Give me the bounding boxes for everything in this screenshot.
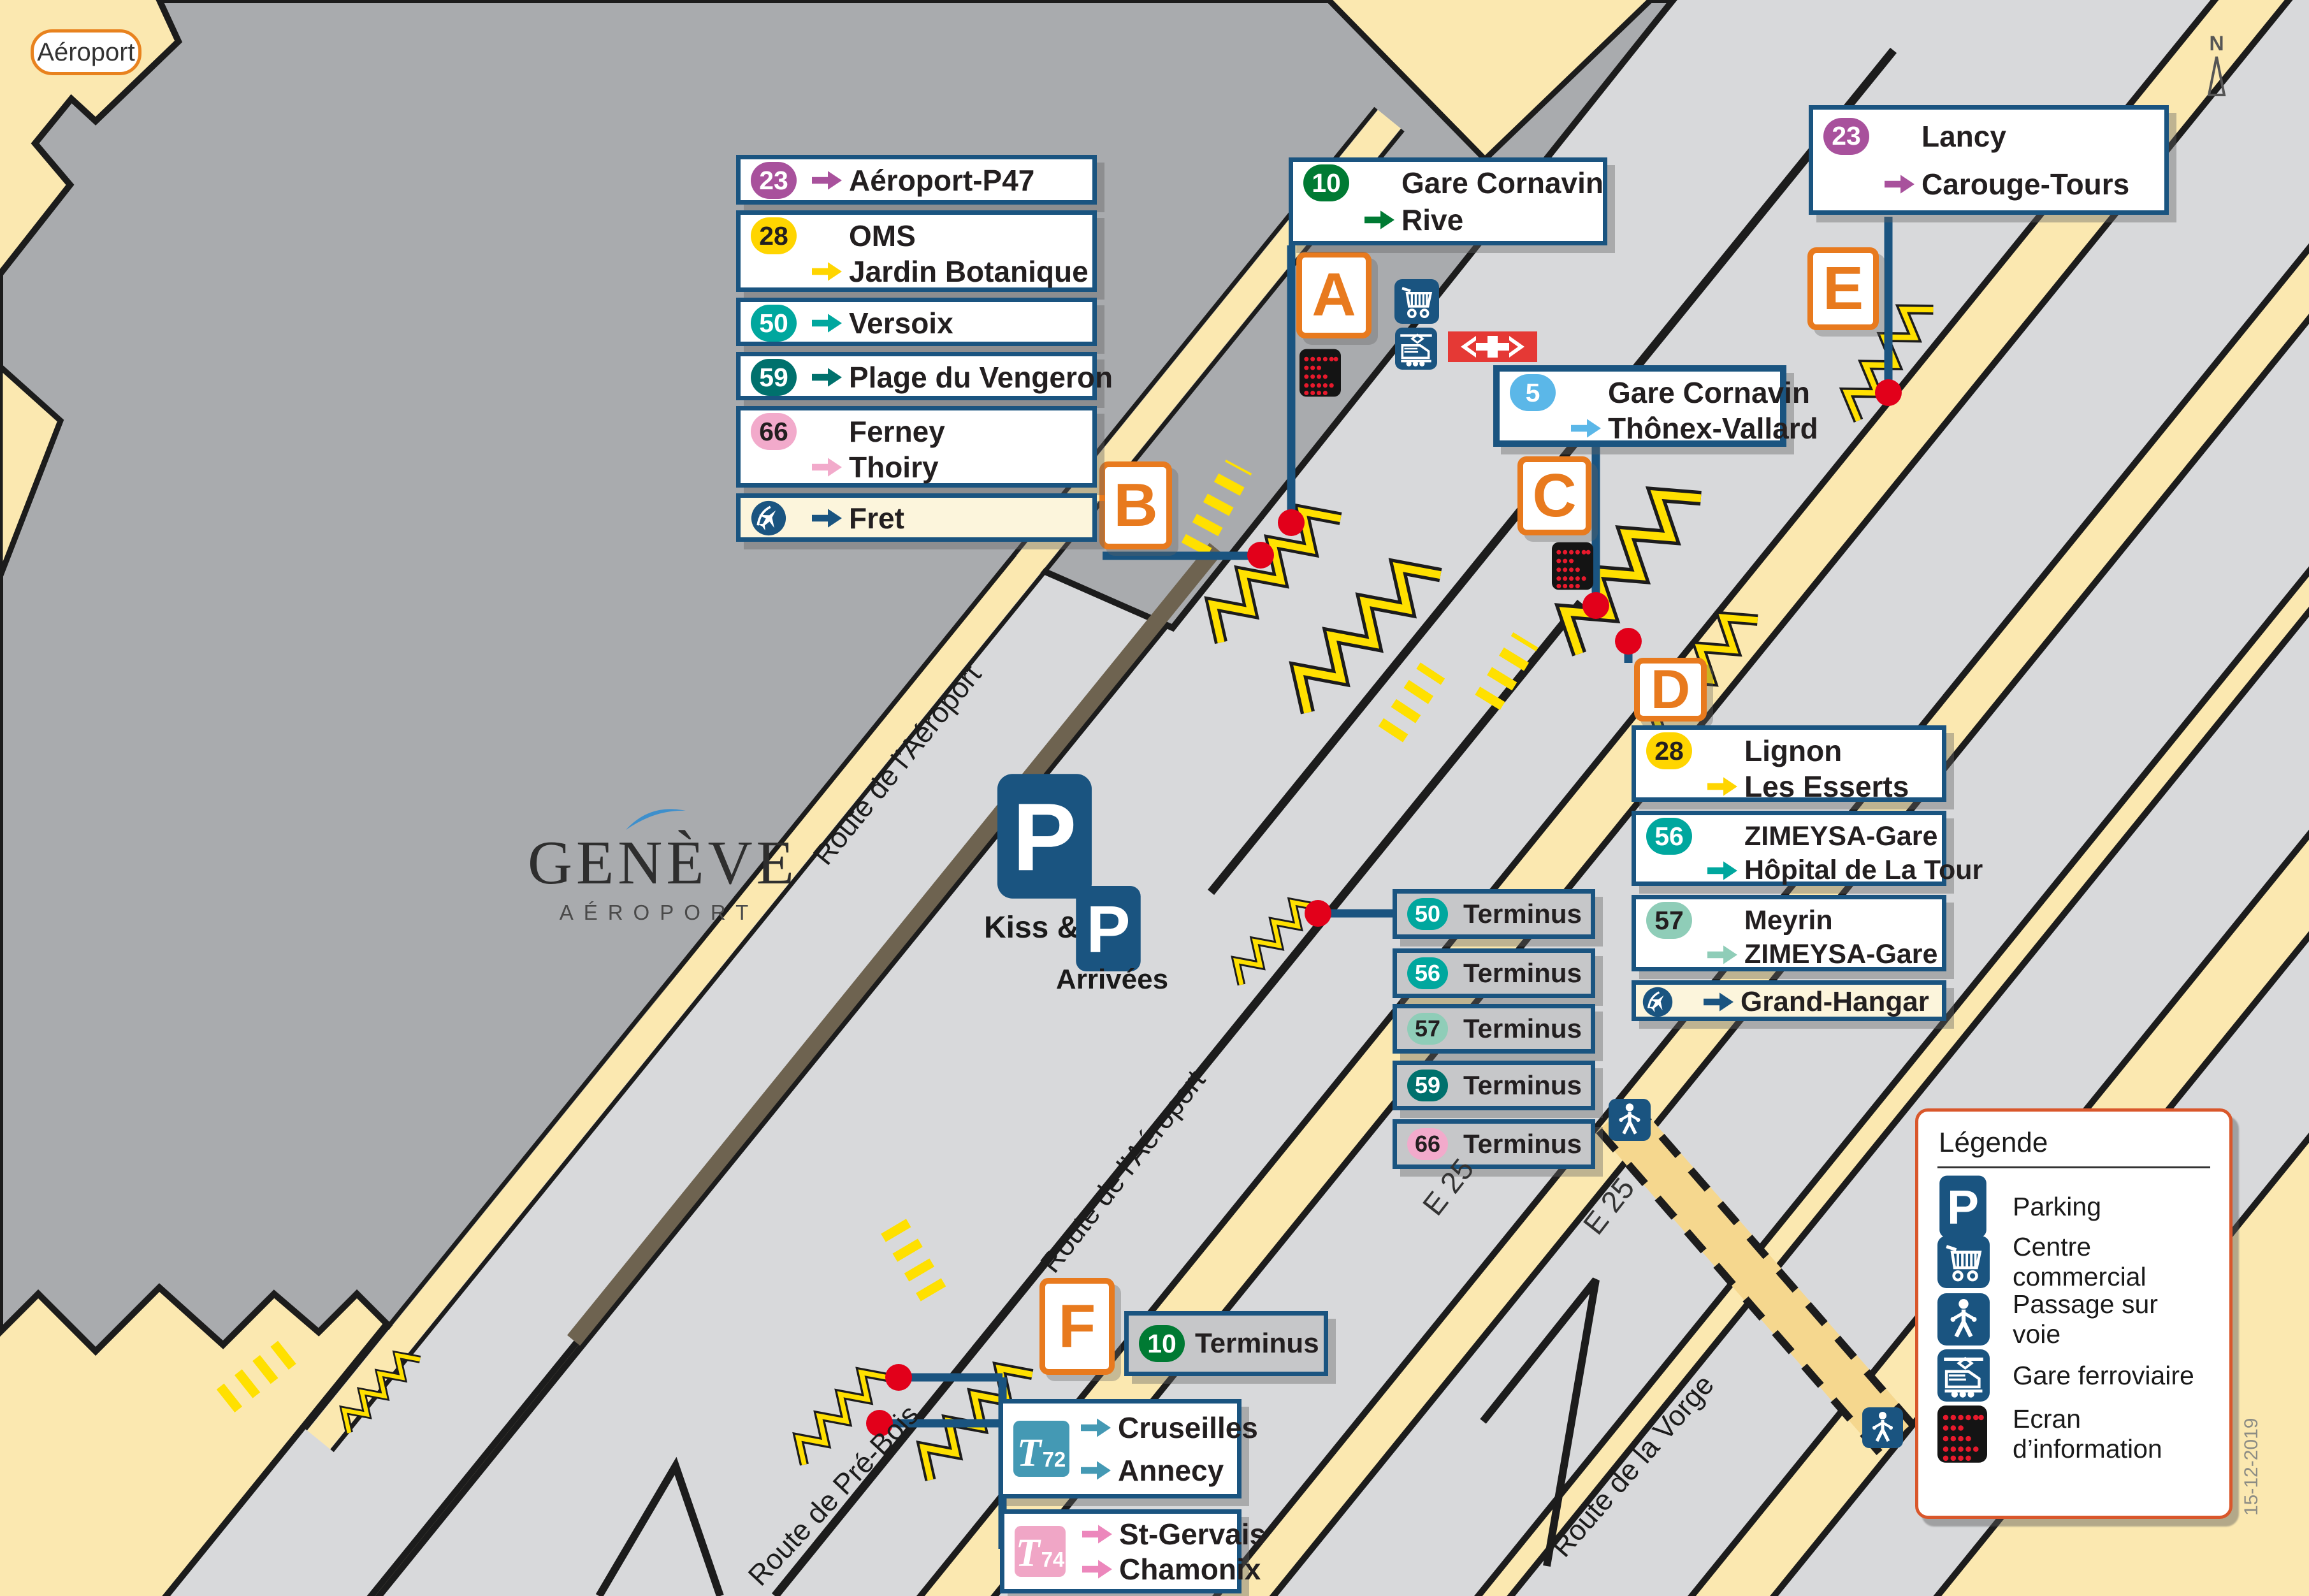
line-badge: 23 (751, 162, 797, 199)
airport-map: P (0, 0, 2309, 1596)
line-badge: 10 (1303, 164, 1349, 201)
line-badge: 50 (751, 305, 797, 342)
north-arrow: N (2196, 32, 2237, 99)
coach-logo-t: T (1017, 1436, 1041, 1472)
arrow-icon (1082, 1523, 1113, 1545)
logo-swoosh-icon (625, 802, 688, 831)
area-pill-label: Aéroport (37, 38, 134, 67)
route-sign-23: 23 Aéroport-P47 (736, 155, 1097, 205)
line-badge: 5 (1510, 374, 1556, 411)
stop-b-badge: B (1099, 461, 1172, 549)
plane-icon (1642, 987, 1673, 1017)
line-badge: 66 (751, 413, 797, 450)
terminus-sign-10: 10 Terminus (1124, 1311, 1328, 1376)
route-sign-57: 57 Meyrin ZIMEYSA-Gare (1632, 895, 1946, 971)
destination: Thônex-Vallard (1608, 411, 1818, 446)
route-sign-50: 50 Versoix (736, 298, 1097, 346)
route-sign-5-cornavin: 5 Gare Cornavin Thônex-Vallard (1493, 365, 1786, 447)
legend-item: Ecran d’information (1937, 1404, 2210, 1462)
line-badge: 56 (1646, 818, 1692, 855)
coach-sign-t74: T74 St-Gervais Chamonix (1000, 1509, 1241, 1593)
arrow-icon (1704, 991, 1734, 1013)
sbb-logo (1448, 331, 1537, 362)
destination: Carouge-Tours (1922, 167, 2157, 201)
terminus-sign-59: 59 Terminus (1393, 1061, 1595, 1110)
stop-e-letter: E (1823, 254, 1864, 324)
terminus-label: Terminus (1463, 1070, 1583, 1101)
line-badge: 50 (1407, 898, 1448, 930)
coach-logo-t: T (1016, 1536, 1040, 1572)
legend-item-label: Centre commercial (2013, 1232, 2210, 1292)
line-badge: 57 (1646, 902, 1692, 939)
arrow-icon (812, 507, 843, 529)
destination: Jardin Botanique (849, 254, 1089, 289)
destination: St-Gervais (1119, 1517, 1266, 1551)
arrow-icon (812, 456, 843, 478)
shopping-cart-icon (1394, 279, 1439, 324)
arrow-icon (1571, 417, 1602, 439)
legend-panel: Légende Parking Centre commercial Passag… (1915, 1108, 2233, 1519)
parking-arrivees-label: Arrivées (1026, 964, 1198, 996)
pedestrian-crossing-icon (1862, 1407, 1903, 1448)
arrow-icon (1082, 1558, 1113, 1580)
logo-subtitle: AÉROPORT (528, 901, 790, 925)
north-arrow-icon (2207, 55, 2226, 96)
line-badge: 57 (1407, 1013, 1448, 1045)
destination: Fret (849, 501, 1085, 535)
line-badge: 66 (1407, 1128, 1448, 1160)
route-sign-28: 28 OMS Jardin Botanique (736, 210, 1097, 292)
stop-b-letter: B (1113, 470, 1157, 540)
line-badge: 59 (1407, 1070, 1448, 1101)
legend-item-label: Gare ferroviaire (2013, 1361, 2210, 1391)
destination: Rive (1401, 203, 1603, 237)
arrow-icon (1707, 860, 1738, 881)
route-sign-23-lancy: 23 Lancy Carouge-Tours (1809, 105, 2169, 215)
stop-d-badge: D (1634, 658, 1707, 722)
terminus-label: Terminus (1463, 899, 1583, 929)
shopping-cart-icon (1937, 1236, 1990, 1288)
legend-divider (1937, 1166, 2210, 1168)
destination: OMS (849, 219, 1089, 253)
train-icon (1937, 1349, 1990, 1402)
legend-item: Passage sur voie (1937, 1289, 2210, 1347)
destination: Annecy (1118, 1453, 1258, 1488)
route-sign-28-lignon: 28 Lignon Les Esserts (1632, 725, 1946, 802)
line-badge: 28 (751, 217, 797, 254)
arrow-icon (1885, 173, 1915, 195)
destination: ZIMEYSA-Gare (1744, 939, 1937, 970)
route-sign-66: 66 Ferney Thoiry (736, 406, 1097, 488)
stop-c-badge: C (1517, 456, 1591, 535)
stop-d-letter: D (1651, 658, 1690, 722)
info-screen-icon (1937, 1405, 1987, 1463)
destination: Grand-Hangar (1741, 986, 1936, 1018)
destination: Thoiry (849, 450, 1085, 484)
coach-number: 74 (1041, 1548, 1065, 1572)
terminus-sign-66: 66 Terminus (1393, 1119, 1595, 1169)
terminus-sign-50: 50 Terminus (1393, 889, 1595, 939)
legend-title: Légende (1939, 1127, 2210, 1159)
coach-line-badge: T74 (1015, 1526, 1066, 1577)
parking-kissfly-icon (995, 770, 1094, 903)
arrow-icon (812, 312, 843, 334)
arrow-icon (812, 170, 843, 191)
arrow-icon (1081, 1417, 1111, 1439)
pedestrian-icon (1937, 1293, 1990, 1346)
north-label: N (2196, 32, 2237, 55)
parking-arrivees-icon (1075, 885, 1142, 973)
destination: Lancy (1922, 119, 2157, 154)
terminus-label: Terminus (1195, 1328, 1319, 1360)
map-date: 15-12-2019 (2241, 1418, 2262, 1516)
geneve-airport-logo: GENÈVE AÉROPORT (528, 802, 790, 925)
route-sign-grand-hangar: Grand-Hangar (1632, 980, 1946, 1021)
line-badge: 56 (1407, 957, 1448, 989)
stop-a-letter: A (1312, 260, 1356, 330)
coach-sign-t72: T72 Cruseilles Annecy (999, 1399, 1241, 1498)
route-sign-59: 59 Plage du Vengeron (736, 352, 1097, 400)
destination: Plage du Vengeron (849, 360, 1113, 395)
parking-icon (1937, 1175, 1988, 1238)
destination: Versoix (849, 306, 1085, 340)
legend-item-label: Passage sur voie (2013, 1289, 2210, 1349)
pedestrian-crossing-icon (1609, 1099, 1651, 1141)
line-badge: 10 (1139, 1325, 1185, 1362)
destination: Chamonix (1119, 1552, 1266, 1586)
terminus-sign-56: 56 Terminus (1393, 948, 1595, 998)
stop-c-letter: C (1532, 461, 1576, 531)
destination: Les Esserts (1744, 769, 1934, 804)
legend-item: Centre commercial (1937, 1232, 2210, 1289)
destination: Lignon (1744, 734, 1934, 768)
arrow-icon (1081, 1460, 1111, 1481)
route-sign-56: 56 ZIMEYSA-Gare Hôpital de La Tour (1632, 811, 1946, 886)
info-screen-icon (1299, 349, 1341, 397)
line-badge: 23 (1823, 118, 1869, 155)
destination: Cruseilles (1118, 1411, 1258, 1445)
stop-e-badge: E (1807, 247, 1879, 330)
destination: Aéroport-P47 (849, 163, 1085, 198)
coach-number: 72 (1043, 1447, 1066, 1472)
destination: Gare Cornavin (1608, 375, 1818, 410)
arrow-icon (1707, 776, 1738, 797)
terminus-label: Terminus (1463, 958, 1583, 989)
legend-item-label: Parking (2013, 1192, 2210, 1222)
line-badge: 59 (751, 359, 797, 396)
logo-title: GENÈVE (528, 827, 790, 898)
coach-line-badge: T72 (1013, 1421, 1069, 1477)
destination: Hôpital de La Tour (1744, 855, 1983, 886)
train-station-icon (1395, 328, 1437, 370)
area-pill: Aéroport (31, 29, 141, 75)
legend-item-label: Ecran d’information (2013, 1404, 2210, 1464)
destination: Gare Cornavin (1401, 166, 1603, 200)
legend-item: Gare ferroviaire (1937, 1347, 2210, 1404)
destination: ZIMEYSA-Gare (1744, 821, 1983, 852)
stop-f-badge: F (1039, 1278, 1115, 1375)
plane-icon (751, 500, 786, 536)
destination: Ferney (849, 414, 1085, 449)
info-screen-icon (1552, 542, 1593, 590)
stop-f-letter: F (1059, 1291, 1096, 1361)
arrow-icon (812, 261, 843, 282)
arrow-icon (812, 366, 843, 388)
terminus-label: Terminus (1463, 1013, 1583, 1044)
stop-a-badge: A (1296, 252, 1372, 338)
terminus-sign-57: 57 Terminus (1393, 1004, 1595, 1054)
arrow-icon (1707, 944, 1738, 966)
line-badge: 28 (1646, 732, 1692, 769)
destination: Meyrin (1744, 905, 1937, 936)
legend-item: Parking (1937, 1175, 2210, 1232)
terminus-label: Terminus (1463, 1129, 1583, 1159)
route-sign-fret: Fret (736, 493, 1097, 542)
route-sign-10-cornavin: 10 Gare Cornavin Rive (1289, 157, 1607, 245)
arrow-icon (1364, 209, 1395, 231)
